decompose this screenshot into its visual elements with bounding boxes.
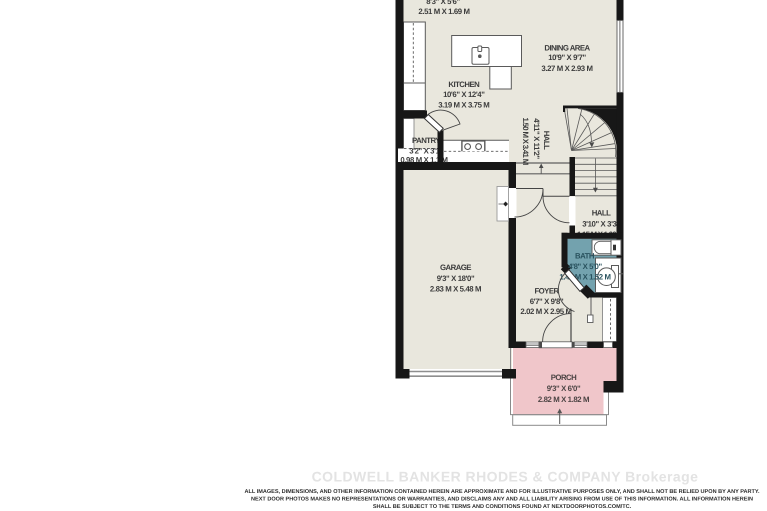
svg-text:4'11" X 11'2": 4'11" X 11'2" xyxy=(532,118,541,159)
svg-text:4'8" X 5'0": 4'8" X 5'0" xyxy=(568,262,602,271)
svg-text:PORCH: PORCH xyxy=(551,373,577,382)
svg-text:3.19 M X 3.75 M: 3.19 M X 3.75 M xyxy=(438,100,489,109)
svg-text:1.50 M X 3.41 M: 1.50 M X 3.41 M xyxy=(521,117,530,164)
svg-text:BATH: BATH xyxy=(575,252,595,261)
svg-text:10'6" X 12'4": 10'6" X 12'4" xyxy=(443,90,485,99)
svg-text:2.51 M X 1.69 M: 2.51 M X 1.69 M xyxy=(418,7,469,16)
svg-text:SHALL BE SUBJECT TO THE TERMS: SHALL BE SUBJECT TO THE TERMS AND CONDIT… xyxy=(373,503,632,510)
svg-text:10'9" X 9'7": 10'9" X 9'7" xyxy=(548,53,586,62)
svg-text:2.82 M X 1.82 M: 2.82 M X 1.82 M xyxy=(538,395,589,404)
svg-text:9'3" X 18'0": 9'3" X 18'0" xyxy=(437,274,475,283)
svg-text:KITCHEN: KITCHEN xyxy=(448,80,480,89)
svg-text:ALL IMAGES, DIMENSIONS, AND OT: ALL IMAGES, DIMENSIONS, AND OTHER INFORM… xyxy=(244,489,760,495)
svg-text:FOYER: FOYER xyxy=(534,286,559,295)
svg-text:HALL: HALL xyxy=(592,209,611,218)
svg-text:HALL: HALL xyxy=(542,131,551,150)
svg-text:8'3" X 5'6": 8'3" X 5'6" xyxy=(426,0,460,6)
svg-text:COLDWELL BANKER RHODES & COMPA: COLDWELL BANKER RHODES & COMPANY Brokera… xyxy=(312,469,699,485)
svg-text:PANTRY: PANTRY xyxy=(412,136,441,145)
svg-text:NEXT DOOR PHOTOS MAKES NO REPR: NEXT DOOR PHOTOS MAKES NO REPRESENTATION… xyxy=(251,497,753,503)
svg-text:9'3" X 6'0": 9'3" X 6'0" xyxy=(547,384,581,393)
svg-text:6'7" X 9'8": 6'7" X 9'8" xyxy=(530,297,564,306)
svg-text:DINING AREA: DINING AREA xyxy=(544,44,590,53)
svg-text:GARAGE: GARAGE xyxy=(440,263,471,272)
svg-text:2.83 M X 5.48 M: 2.83 M X 5.48 M xyxy=(430,284,481,293)
svg-text:3.27 M X 2.93 M: 3.27 M X 2.93 M xyxy=(541,64,592,73)
svg-text:3'10" X 3'3": 3'10" X 3'3" xyxy=(582,220,620,229)
